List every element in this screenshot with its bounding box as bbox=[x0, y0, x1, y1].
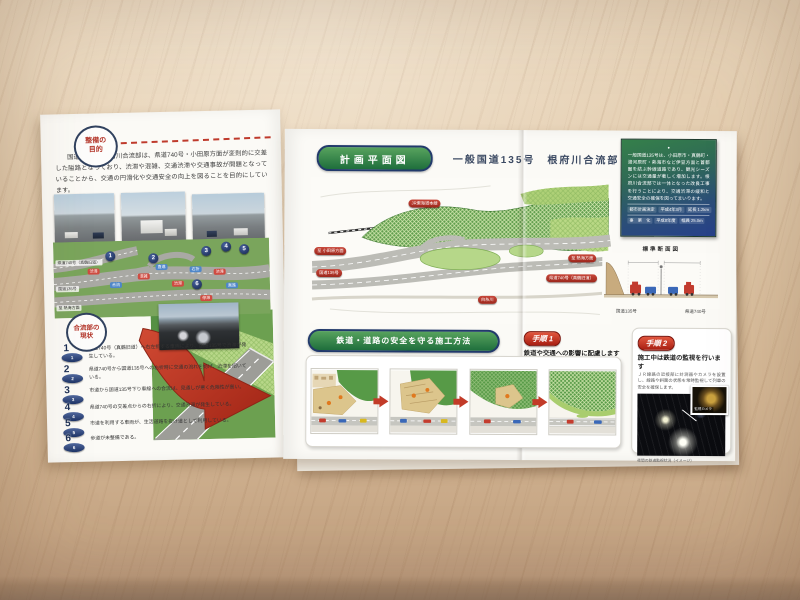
plan-label-pref740: 県道740号（真鶴旧道） bbox=[546, 274, 597, 282]
step-arrow-icon bbox=[459, 396, 468, 408]
issue-item: 6 6 歩道が未整備である。 bbox=[63, 432, 268, 444]
step-illustration-4 bbox=[548, 369, 616, 435]
cross-section-diagram: 標準断面図 国道135号 県道740号 bbox=[602, 244, 720, 329]
plan-drawing: JR東海道本線 至 小田原方面 国道135号 至 熱海方面 県道740号（真鶴旧… bbox=[310, 177, 613, 325]
photo-caption: 夜間の鉄道監視状況（イメージ） bbox=[637, 459, 725, 464]
issue-pin-badge: 1 bbox=[62, 353, 83, 362]
plan-label-to-atami: 至 熱海方面 bbox=[568, 254, 596, 262]
road-name-label: 県道740号（真鶴旧道） bbox=[55, 259, 102, 266]
info-row-value: 延長 1.2km bbox=[686, 207, 711, 213]
cross-section-label-left: 国道135号 bbox=[616, 309, 637, 315]
red-dashed-divider bbox=[121, 136, 271, 144]
traffic-flow-label: 混雑 bbox=[138, 273, 150, 279]
issue-text: 歩道が未整備である。 bbox=[90, 432, 250, 443]
traffic-flow-label: 停滞 bbox=[200, 295, 212, 301]
current-badge-line2: 現状 bbox=[80, 332, 93, 340]
road-name-label: 国道135号 bbox=[56, 286, 79, 293]
desk-edge-shadow bbox=[0, 576, 800, 600]
night-monitoring-photo: 監視カメラ bbox=[637, 394, 725, 456]
traffic-flow-label: 渋滞 bbox=[88, 268, 100, 274]
step2-title: 施工中は鉄道の監視を行います bbox=[638, 353, 726, 371]
traffic-flow-label: 渋滞 bbox=[214, 269, 226, 275]
traffic-flow-label: 合流 bbox=[110, 282, 122, 288]
brochure-photo-scene: 整備の 目的 国道135号の根府川合流部は、県道740号・小田原方面が変則的に交… bbox=[0, 0, 800, 600]
purpose-badge-line2: 目的 bbox=[89, 146, 103, 155]
info-box-text: 一般国道135号は、小田原市・真鶴町・湯河原町・熱海市など伊豆方面と首都圏を結ぶ… bbox=[627, 152, 709, 202]
brochure-left-page: 整備の 目的 国道135号の根府川合流部は、県道740号・小田原方面が変則的に交… bbox=[40, 109, 288, 462]
step1-badge: 手順 1 bbox=[524, 331, 561, 346]
cross-section-label-right: 県道740号 bbox=[685, 309, 706, 315]
plan-drawing-svg bbox=[310, 177, 613, 325]
brochure-right-page: 計画平面図 一般国道135号 根府川合流部 bbox=[283, 129, 737, 461]
purpose-badge-line1: 整備の bbox=[85, 138, 106, 147]
traffic-flow-label: 右折 bbox=[190, 266, 202, 272]
info-row-label: 都市計画決定 bbox=[627, 206, 656, 212]
step-arrow-icon bbox=[538, 396, 547, 408]
info-table-row: 事 業 化 平成8年度 幅員 25.0m bbox=[627, 215, 709, 224]
cross-section-labels: 国道135号 県道740号 bbox=[602, 308, 720, 315]
step-illustration-2 bbox=[390, 368, 458, 434]
traffic-flow-label: 渋滞 bbox=[172, 281, 184, 287]
plan-header-pill: 計画平面図 bbox=[317, 145, 433, 172]
step2-panel: 手順 2 施工中は鉄道の監視を行います ＪＲ線路の近接部に計測器やカメラを設置し… bbox=[631, 328, 732, 455]
info-table-row: 都市計画決定 平成4年3月 延長 1.2km bbox=[627, 204, 709, 213]
project-info-box: ● 一般国道135号は、小田原市・真鶴町・湯河原町・熱海市など伊豆方面と首都圏を… bbox=[620, 139, 717, 238]
inset-camera-photo: 監視カメラ bbox=[690, 385, 728, 415]
step-arrow-icon bbox=[380, 395, 389, 407]
plan-label-route135: 国道135号 bbox=[316, 269, 342, 277]
info-row-value: 平成4年3月 bbox=[659, 207, 684, 213]
step2-badge: 手順 2 bbox=[638, 336, 675, 351]
method-header-pill: 鉄道・道路の安全を守る施工方法 bbox=[308, 329, 500, 353]
info-row-value: 平成8年度 bbox=[654, 218, 677, 224]
info-box-dot: ● bbox=[628, 145, 710, 150]
issue-pin-badge: 2 bbox=[62, 374, 83, 383]
info-row-label: 事 業 化 bbox=[627, 217, 652, 223]
cross-section-svg bbox=[602, 252, 720, 309]
info-row-value: 幅員 25.0m bbox=[679, 218, 704, 224]
traffic-flow-label: 直進 bbox=[156, 264, 168, 270]
plan-label-to-odawara: 至 小田原方面 bbox=[314, 247, 346, 255]
inset-photo-label: 監視カメラ bbox=[693, 407, 713, 412]
issue-pin-badge: 6 bbox=[64, 443, 85, 452]
photo-intersection-1 bbox=[54, 193, 115, 248]
construction-steps-panel bbox=[305, 355, 621, 449]
plan-title: 一般国道135号 根府川合流部 bbox=[453, 151, 620, 167]
step-illustration-1 bbox=[310, 368, 378, 434]
step-illustration-3 bbox=[469, 369, 537, 435]
road-name-label: 至 熱海方面 bbox=[56, 305, 81, 312]
traffic-flow-label: 直進 bbox=[226, 282, 238, 288]
plan-label-railway: JR東海道本線 bbox=[408, 199, 440, 207]
plan-label-river: 白糸川 bbox=[478, 296, 497, 304]
